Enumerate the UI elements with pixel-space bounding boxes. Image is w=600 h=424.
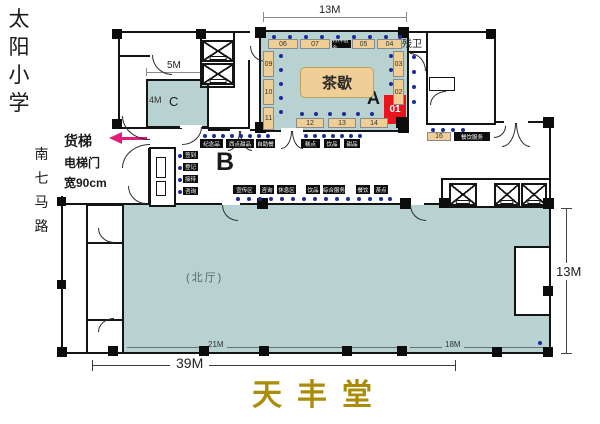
seat-dot-icon [279, 110, 283, 114]
seat-dot-icon [331, 134, 335, 138]
booth: 11 [263, 107, 274, 130]
seat-dot-icon [230, 134, 234, 138]
seat-dot-icon [412, 100, 416, 104]
seat-dot-icon [379, 197, 383, 201]
column [543, 198, 554, 209]
column [112, 29, 122, 39]
door-width-label: 宽90cm [64, 174, 107, 191]
freight-elevator-label: 货梯 [64, 131, 92, 151]
service-label: 宣传区 [233, 185, 256, 194]
seat-dot-icon [389, 68, 393, 72]
door-arc-icon [281, 131, 292, 149]
desk-slot [156, 157, 166, 178]
seat-dot-icon [538, 341, 542, 345]
dim-13m-top-label: 13M [317, 4, 342, 16]
seat-dot-icon [368, 35, 372, 39]
seat-dot-icon [389, 82, 393, 86]
column [492, 347, 502, 357]
column [112, 119, 122, 129]
seat-dot-icon [368, 197, 372, 201]
dim-tick [263, 12, 264, 22]
seat-dot-icon [248, 134, 252, 138]
page-title: 天丰堂 [252, 370, 387, 414]
wall [61, 196, 63, 354]
booth: 13 [328, 118, 356, 128]
seat-dot-icon [279, 82, 283, 86]
seat-dot-icon [412, 55, 416, 59]
service-label: 自助餐 [256, 139, 275, 148]
seat-dot-icon [279, 54, 283, 58]
wall [549, 121, 551, 354]
stage-left-box [86, 242, 124, 321]
service-label: 餐饮服务 [454, 132, 490, 141]
seat-dot-icon [313, 134, 317, 138]
seat-dot-icon [178, 166, 182, 170]
seat-dot-icon [269, 197, 273, 201]
service-label: 糕点 [301, 139, 320, 148]
service-label: 休息区 [277, 185, 296, 194]
seat-dot-icon [346, 197, 350, 201]
dim-18m-label: 18M [442, 340, 464, 349]
seat-dot-icon [349, 134, 353, 138]
seat-dot-icon [389, 54, 393, 58]
seat-dot-icon [313, 197, 317, 201]
seat-dot-icon [203, 134, 207, 138]
road-label: 南七马路 [33, 142, 50, 238]
seat-dot-icon [279, 68, 283, 72]
elevator-shaft-icon [449, 183, 477, 206]
elevator-hatch [500, 200, 513, 204]
wall [118, 55, 150, 57]
seat-dot-icon [335, 197, 339, 201]
booth: 04 [377, 39, 402, 49]
seat-dot-icon [280, 197, 284, 201]
door-arc-icon [516, 123, 530, 147]
seat-dot-icon [178, 154, 182, 158]
booth: 09 [263, 51, 274, 77]
column [396, 117, 407, 128]
seat-dot-icon [384, 35, 388, 39]
column [255, 27, 266, 38]
wall [200, 86, 235, 88]
freight-arrow-head-icon [109, 132, 122, 144]
wall [118, 31, 250, 33]
dim-tick [146, 68, 147, 76]
seat-dot-icon [266, 134, 270, 138]
dim-13m-top-line [263, 17, 407, 18]
column [199, 346, 209, 356]
wall [61, 352, 551, 354]
dim-tick [92, 360, 93, 371]
seat-dot-icon [291, 197, 295, 201]
service-label: 餐饮 [356, 185, 370, 194]
seat-dot-icon [178, 178, 182, 182]
booth: 10 [263, 79, 274, 105]
seat-dot-icon [412, 85, 416, 89]
service-label: 饮品 [324, 139, 340, 148]
elevator-door-label: 电梯门 [64, 154, 100, 171]
seat-dot-icon [322, 134, 326, 138]
service-label: 西点甜品 [226, 139, 254, 148]
column [57, 197, 66, 206]
service-label: 综合服务 [323, 185, 345, 194]
column [57, 280, 66, 289]
elevator-shaft-icon [202, 63, 234, 85]
elevator-shaft-icon [494, 183, 520, 206]
tea-table: 茶歇 [300, 67, 374, 98]
column [543, 347, 553, 357]
column [397, 346, 407, 356]
seat-dot-icon [356, 112, 360, 116]
seat-dot-icon [247, 197, 251, 201]
booth: 06 [268, 39, 298, 49]
zone-c-label: C [169, 94, 178, 109]
column [486, 29, 496, 39]
booth: 03 [393, 51, 404, 77]
dim-tick [561, 208, 572, 209]
dim-39m-label: 39M [170, 355, 209, 371]
seat-dot-icon [451, 128, 455, 132]
service-label: 咨询 [260, 185, 274, 194]
seat-dot-icon [221, 134, 225, 138]
seat-dot-icon [239, 134, 243, 138]
seat-dot-icon [340, 134, 344, 138]
dim-18m-line [410, 347, 546, 348]
service-label: 饮品 [306, 185, 320, 194]
service-label: 接待 [183, 175, 198, 183]
school-label: 太阳小学 [6, 6, 32, 118]
door-arc-icon [122, 144, 150, 168]
seat-dot-icon [236, 197, 240, 201]
service-label: 签到 [183, 151, 198, 159]
north-hall-label: (北厅) [186, 269, 223, 285]
elevator-hatch [527, 200, 540, 204]
column [259, 346, 269, 356]
column [108, 346, 118, 356]
elevator-hatch [210, 56, 227, 60]
dim-13m-right-line [566, 208, 567, 354]
seat-dot-icon [304, 35, 308, 39]
tea-table-label: 茶歇 [322, 72, 352, 93]
seat-dot-icon [441, 128, 445, 132]
seat-dot-icon [358, 134, 362, 138]
seat-dot-icon [272, 35, 276, 39]
service-label: 茶点 [374, 185, 388, 194]
booth: 14 [360, 118, 388, 128]
column [439, 198, 449, 208]
seat-dot-icon [300, 112, 304, 116]
elevator-hatch [456, 200, 470, 204]
booth: 16 [427, 132, 451, 141]
wall [407, 31, 428, 33]
restroom-counter [429, 77, 455, 91]
dim-tick [455, 360, 456, 371]
booth: 07 [300, 39, 330, 49]
booth: 05 [352, 39, 375, 49]
seat-dot-icon [279, 96, 283, 100]
dim-4m-label: 4M [149, 95, 162, 105]
seat-dot-icon [336, 35, 340, 39]
seat-dot-icon [258, 197, 262, 201]
seat-dot-icon [398, 35, 402, 39]
service-label: 纪念品 [200, 139, 223, 148]
wall [208, 129, 230, 131]
seat-dot-icon [178, 190, 182, 194]
column [57, 347, 67, 357]
door-arc-icon [128, 186, 146, 204]
seat-dot-icon [257, 134, 261, 138]
floor-plan: 太阳小学 南七马路 货梯 电梯门 宽90cm A B C 茶歇 (北厅) 男卫生… [0, 0, 600, 424]
seat-dot-icon [412, 70, 416, 74]
seat-dot-icon [370, 112, 374, 116]
service-label: 特种租金 [332, 40, 351, 48]
service-label: 登记 [183, 163, 198, 171]
column [196, 29, 206, 39]
column [342, 346, 352, 356]
seat-dot-icon [320, 35, 324, 39]
dim-tick [561, 353, 572, 354]
column [543, 286, 553, 296]
seat-dot-icon [461, 128, 465, 132]
zone-b-label: B [216, 148, 234, 177]
wall [118, 31, 120, 127]
wall [248, 60, 250, 129]
seat-dot-icon [342, 112, 346, 116]
seat-dot-icon [324, 197, 328, 201]
seat-dot-icon [314, 112, 318, 116]
seat-dot-icon [212, 134, 216, 138]
seat-dot-icon [352, 35, 356, 39]
service-label: 咨询 [183, 187, 198, 195]
seat-dot-icon [388, 197, 392, 201]
seat-dot-icon [431, 128, 435, 132]
dim-tick [406, 12, 407, 22]
seat-dot-icon [288, 35, 292, 39]
service-label: 甜品 [344, 139, 360, 148]
desk-slot [156, 181, 166, 196]
stage-right-box [514, 246, 551, 316]
door-arc-icon [182, 127, 202, 145]
booth: 02 [393, 79, 404, 105]
booth: 12 [296, 118, 324, 128]
elevator-hatch [210, 79, 227, 83]
seat-dot-icon [357, 197, 361, 201]
elevator-shaft-icon [202, 40, 234, 62]
seat-dot-icon [328, 112, 332, 116]
dim-13m-right-label: 13M [555, 263, 582, 280]
column [543, 117, 554, 128]
dim-39m-line [92, 365, 456, 366]
seat-dot-icon [302, 197, 306, 201]
seat-dot-icon [304, 134, 308, 138]
